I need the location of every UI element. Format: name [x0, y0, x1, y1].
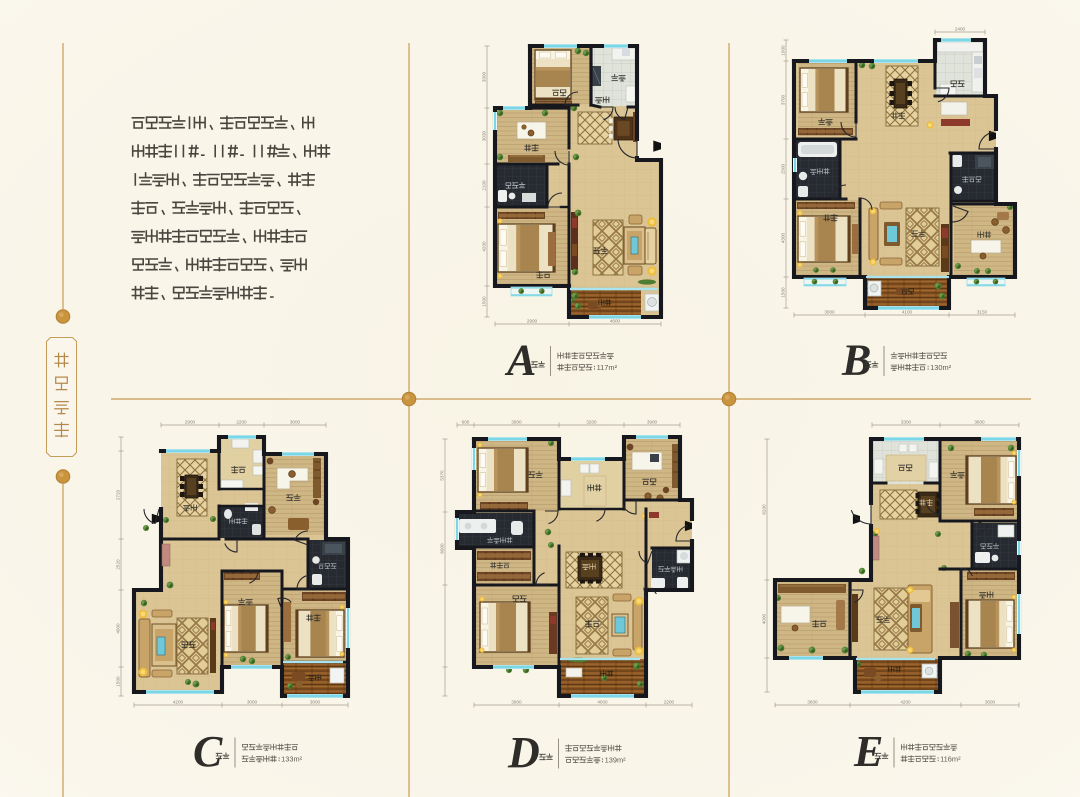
svg-text:6000: 6000: [439, 543, 444, 554]
svg-text:3000: 3000: [247, 699, 258, 704]
svg-text:3700: 3700: [780, 94, 785, 105]
svg-text:139m²: 139m²: [605, 756, 626, 765]
svg-text:3300: 3300: [481, 71, 486, 82]
svg-text:4200: 4200: [481, 241, 486, 252]
svg-text:1500: 1500: [115, 676, 120, 687]
svg-text:3600: 3600: [974, 419, 985, 424]
svg-text:4600: 4600: [610, 318, 621, 323]
svg-text:2200: 2200: [236, 419, 247, 424]
svg-text:3300: 3300: [901, 419, 912, 424]
svg-text:5370: 5370: [439, 470, 444, 481]
svg-text:3150: 3150: [977, 309, 988, 314]
svg-text:A: A: [504, 336, 536, 385]
svg-text:4000: 4000: [761, 613, 766, 624]
svg-text:3000: 3000: [310, 699, 321, 704]
svg-text:3900: 3900: [511, 419, 522, 424]
svg-text:116m²: 116m²: [940, 755, 961, 764]
svg-text:3200: 3200: [586, 419, 597, 424]
svg-text:2200: 2200: [664, 699, 675, 704]
svg-text:2520: 2520: [115, 559, 120, 570]
svg-text:1500: 1500: [481, 296, 486, 307]
svg-text:2500: 2500: [780, 163, 785, 174]
svg-text:E: E: [853, 727, 883, 776]
svg-text:D: D: [507, 728, 540, 777]
svg-text:600: 600: [462, 419, 470, 424]
svg-text:4200: 4200: [900, 699, 911, 704]
svg-text:3900: 3900: [647, 419, 658, 424]
svg-text:3600: 3600: [807, 699, 818, 704]
svg-text:4100: 4100: [902, 309, 913, 314]
svg-text:6200: 6200: [761, 504, 766, 515]
svg-text:3600: 3600: [985, 699, 996, 704]
svg-text:2400: 2400: [955, 26, 966, 31]
svg-text:3900: 3900: [511, 699, 522, 704]
svg-text:3000: 3000: [290, 419, 301, 424]
svg-text:4000: 4000: [115, 623, 120, 634]
svg-text:C: C: [193, 727, 223, 776]
svg-text:4300: 4300: [780, 232, 785, 243]
svg-text:133m²: 133m²: [281, 755, 302, 764]
svg-text:1500: 1500: [780, 287, 785, 298]
svg-text:4000: 4000: [597, 699, 608, 704]
svg-text:2720: 2720: [115, 489, 120, 500]
svg-text:4200: 4200: [173, 699, 184, 704]
svg-text:2900: 2900: [185, 419, 196, 424]
svg-text:2900: 2900: [527, 318, 538, 323]
svg-text:3000: 3000: [824, 309, 835, 314]
svg-text:1000: 1000: [780, 45, 785, 56]
svg-text:117m²: 117m²: [597, 363, 618, 372]
svg-text:2100: 2100: [481, 180, 486, 191]
svg-text:3030: 3030: [481, 130, 486, 141]
svg-text:B: B: [841, 336, 871, 385]
svg-text:130m²: 130m²: [930, 363, 951, 372]
